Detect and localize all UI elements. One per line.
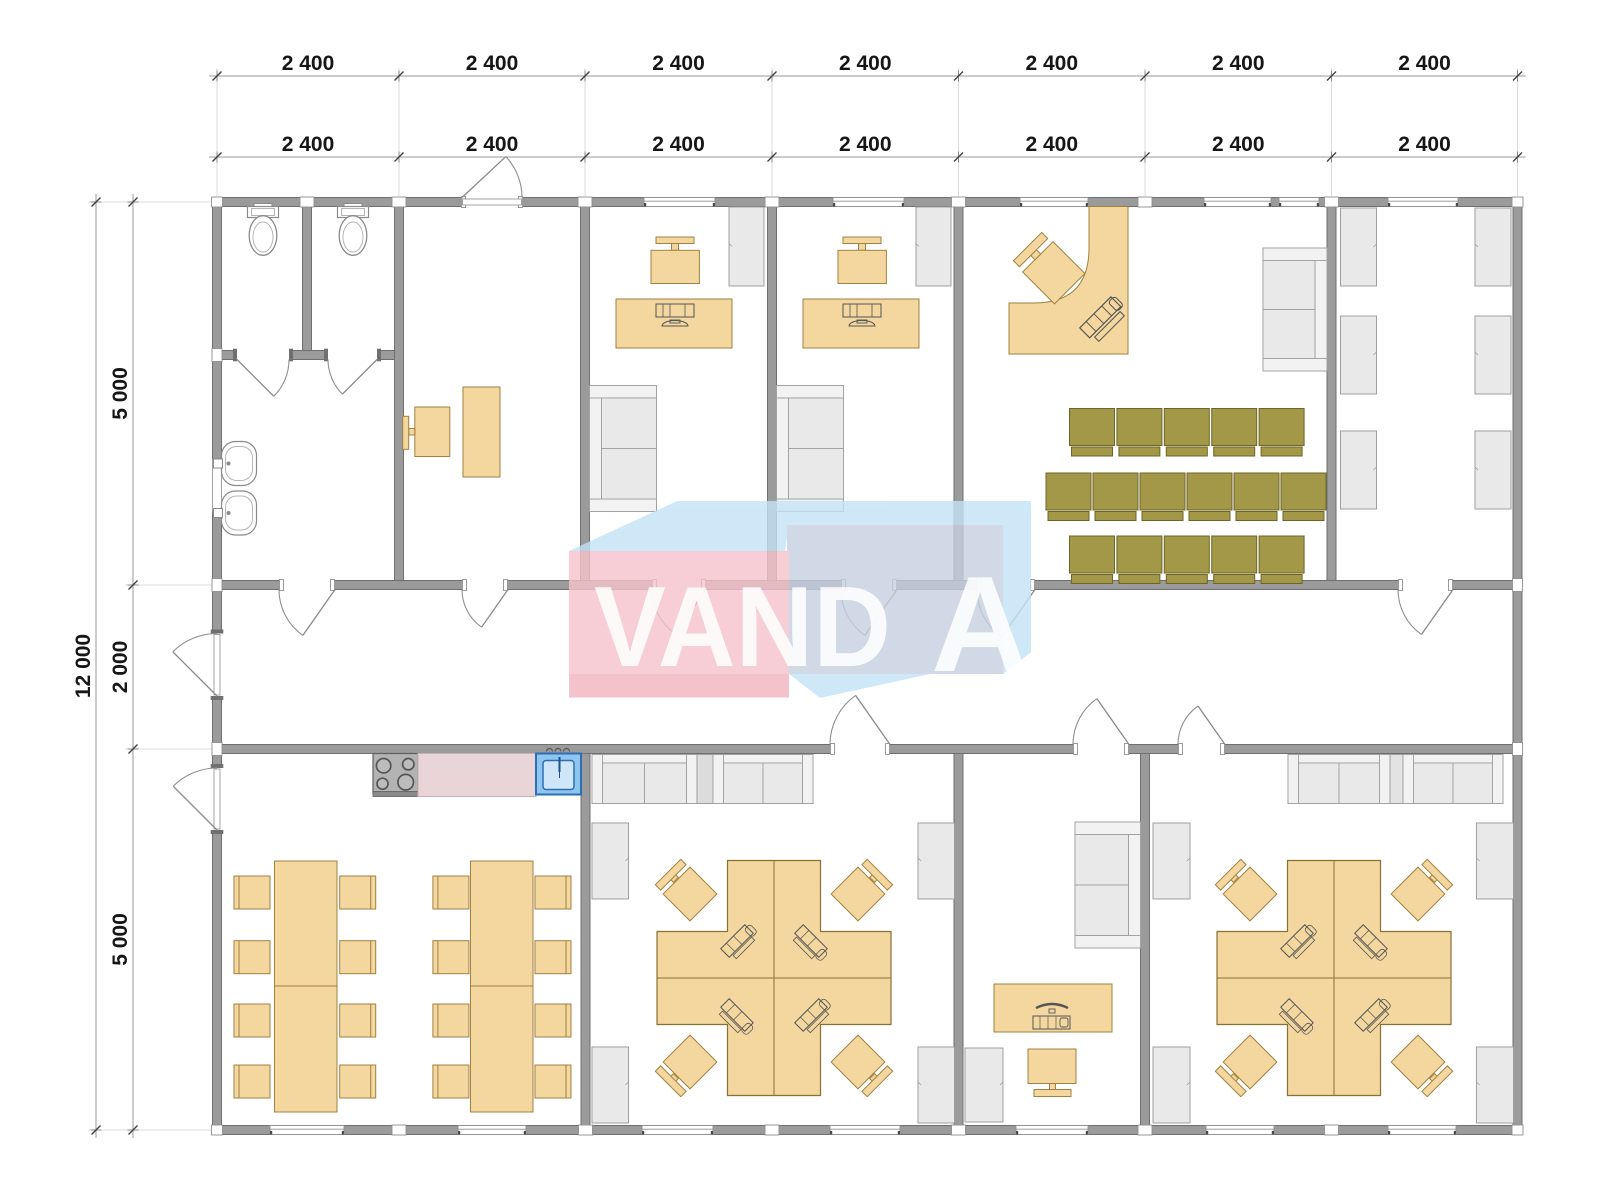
svg-text:5 000: 5 000 <box>109 367 132 420</box>
svg-text:2 400: 2 400 <box>1398 52 1451 75</box>
svg-text:2 400: 2 400 <box>282 133 335 156</box>
svg-text:2 400: 2 400 <box>1212 133 1265 156</box>
svg-text:2 400: 2 400 <box>1025 133 1078 156</box>
svg-text:2 400: 2 400 <box>1212 52 1265 75</box>
svg-text:12 000: 12 000 <box>72 634 95 698</box>
svg-text:VAND: VAND <box>594 564 891 691</box>
svg-text:2 400: 2 400 <box>839 133 892 156</box>
svg-text:2 400: 2 400 <box>1025 52 1078 75</box>
svg-text:5 000: 5 000 <box>109 913 132 966</box>
svg-text:2 400: 2 400 <box>652 52 705 75</box>
svg-text:2 400: 2 400 <box>466 52 519 75</box>
svg-text:2 400: 2 400 <box>839 52 892 75</box>
svg-text:2 400: 2 400 <box>466 133 519 156</box>
svg-text:2 400: 2 400 <box>1398 133 1451 156</box>
svg-text:2 400: 2 400 <box>652 133 705 156</box>
svg-text:2 000: 2 000 <box>109 641 132 694</box>
svg-text:A: A <box>931 548 1029 700</box>
svg-text:2 400: 2 400 <box>282 52 335 75</box>
